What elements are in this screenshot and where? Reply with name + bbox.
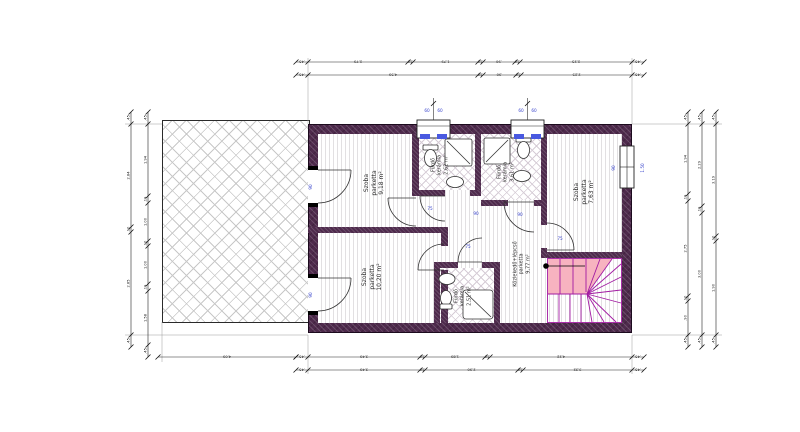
svg-text:.45: .45 (299, 355, 305, 359)
dimension-chain: .452.84.102.85.45 (127, 110, 134, 350)
opening-dimension-label: 90 (308, 184, 313, 190)
svg-text:2.25: 2.25 (572, 60, 580, 64)
svg-text:.45: .45 (635, 60, 641, 64)
dimension-chain: .452.79.101.79.10.90.102.25.45 (294, 60, 647, 65)
svg-text:.45: .45 (144, 348, 148, 354)
svg-text:.45: .45 (712, 115, 716, 121)
svg-text:.45: .45 (144, 115, 148, 121)
opening-dimension-label: 75 (557, 236, 563, 241)
room-area: 9,18 m² (378, 171, 386, 195)
svg-text:4.22: 4.22 (557, 355, 565, 359)
room-name: Szoba (573, 183, 581, 201)
svg-text:.10: .10 (484, 355, 490, 359)
room-area: 3,61 m² (509, 162, 515, 182)
svg-text:.10: .10 (144, 240, 148, 246)
dimension-chain: .452.29.193.00.45 (698, 110, 705, 350)
svg-text:4.09: 4.09 (222, 355, 231, 359)
svg-text:3.19: 3.19 (712, 175, 716, 184)
svg-text:2.84: 2.84 (127, 171, 131, 180)
svg-text:2.85: 2.85 (127, 279, 131, 287)
svg-text:.45: .45 (635, 355, 641, 359)
svg-text:.45: .45 (299, 368, 305, 372)
room-area: 2,62 m² (443, 155, 449, 175)
svg-text:2.29: 2.29 (698, 160, 702, 169)
dimension-chain: .451.94.191.00.101.00.191.58.45 (144, 110, 151, 360)
svg-text:.45: .45 (698, 338, 702, 344)
svg-text:2.79: 2.79 (353, 60, 362, 64)
svg-text:.45: .45 (635, 368, 641, 372)
svg-text:2.90: 2.90 (467, 368, 476, 372)
room-area: 7,63 m² (588, 180, 596, 204)
room-label-furdo-251: Fürdő kerámia 2,51 m² (454, 286, 473, 306)
opening-dimension-label: 90 (517, 212, 523, 217)
svg-text:1.00: 1.00 (144, 260, 148, 269)
svg-text:1.58: 1.58 (144, 313, 148, 322)
room-label-furdo-262: Fürdő kerámia 2,62 m² (431, 155, 450, 175)
svg-text:.10: .10 (517, 368, 523, 372)
svg-text:.19: .19 (684, 194, 688, 200)
room-label-szoba-763: Szoba parketta 7,63 m² (573, 179, 596, 204)
svg-text:1.94: 1.94 (684, 154, 688, 163)
svg-text:1.90: 1.90 (712, 283, 716, 292)
room-name: Szoba (361, 268, 369, 286)
svg-text:.10: .10 (514, 60, 520, 64)
dimension-chain: 4.09 (156, 355, 299, 360)
svg-text:1.00: 1.00 (144, 217, 148, 226)
svg-text:.45: .45 (684, 115, 688, 121)
svg-text:.19: .19 (698, 206, 702, 212)
svg-text:.10: .10 (477, 60, 483, 64)
opening-dimension-label: 90 (308, 292, 313, 298)
room-label-kozlekedo-977: Közlekedő+lépcső parketta 9,77 m² (513, 241, 532, 286)
svg-text:3.49: 3.49 (359, 355, 368, 359)
room-area: 9,77 m² (525, 254, 531, 274)
svg-text:.45: .45 (698, 115, 702, 121)
room-area: 10,20 m² (376, 263, 384, 290)
room-floor: parketta (370, 170, 378, 195)
svg-text:.45: .45 (299, 73, 305, 77)
opening-dimension-label: 60 (424, 108, 430, 113)
svg-text:.10: .10 (419, 355, 425, 359)
dimension-chain: .454.59.10.90.102.25.45 (294, 73, 647, 78)
room-label-furdo-361: Fürdő kerámia 3,61 m² (497, 162, 516, 182)
opening-dimension-label: 75 (465, 244, 471, 249)
svg-text:.90: .90 (684, 314, 688, 320)
opening-dimension-label: 75 (427, 206, 433, 211)
svg-text:.45: .45 (299, 60, 305, 64)
opening-dimension-label: 60 (437, 108, 443, 113)
svg-text:.19: .19 (144, 196, 148, 202)
svg-text:4.59: 4.59 (388, 73, 397, 77)
svg-text:.10: .10 (419, 368, 425, 372)
svg-text:2.75: 2.75 (684, 244, 688, 252)
svg-text:1.94: 1.94 (144, 155, 148, 164)
dimension-chain: .453.49.101.89.104.22.45 (294, 355, 647, 360)
svg-text:1.89: 1.89 (450, 355, 459, 359)
opening-dimension-label: 60 (531, 108, 537, 113)
svg-text:.10: .10 (515, 73, 521, 77)
opening-dimension-label: 90 (611, 165, 616, 171)
room-area: 2,51 m² (466, 286, 472, 306)
dimension-chain: .453.19.101.90.45 (712, 110, 719, 350)
opening-dimension-label: 60 (518, 108, 524, 113)
svg-text:3.49: 3.49 (359, 368, 368, 372)
room-floor: parketta (580, 179, 588, 204)
svg-text:1.79: 1.79 (441, 60, 450, 64)
room-floor: parketta (368, 264, 376, 289)
dimension-chain: .453.49.102.90.103.32.45 (294, 368, 647, 373)
svg-text:.10: .10 (127, 226, 131, 232)
room-name: Szoba (363, 174, 371, 192)
svg-text:.10: .10 (684, 295, 688, 301)
svg-text:.10: .10 (407, 60, 413, 64)
svg-text:.10: .10 (477, 73, 483, 77)
svg-text:3.32: 3.32 (573, 368, 581, 372)
svg-text:3.00: 3.00 (698, 269, 702, 278)
opening-dimension-label: 90 (473, 211, 479, 216)
svg-text:.45: .45 (127, 338, 131, 344)
svg-text:.19: .19 (144, 284, 148, 290)
svg-text:.45: .45 (712, 338, 716, 344)
room-label-szoba-1020: Szoba parketta 10,20 m² (361, 263, 384, 290)
floor-plan-canvas: .452.79.101.79.10.90.102.25.45.454.59.10… (0, 0, 800, 432)
room-label-szoba-918: Szoba parketta 9,18 m² (363, 170, 386, 195)
svg-text:.45: .45 (635, 73, 641, 77)
dimension-chains: .452.79.101.79.10.90.102.25.45.454.59.10… (0, 0, 800, 432)
dimension-chain: .451.94.192.75.10.90.45 (684, 110, 691, 350)
svg-text:.45: .45 (127, 115, 131, 121)
opening-dimension-label: 1.50 (640, 163, 645, 173)
svg-text:2.25: 2.25 (572, 73, 580, 77)
svg-text:.90: .90 (495, 60, 501, 64)
svg-text:.90: .90 (496, 73, 502, 77)
svg-text:.45: .45 (684, 338, 688, 344)
svg-text:.10: .10 (712, 235, 716, 241)
